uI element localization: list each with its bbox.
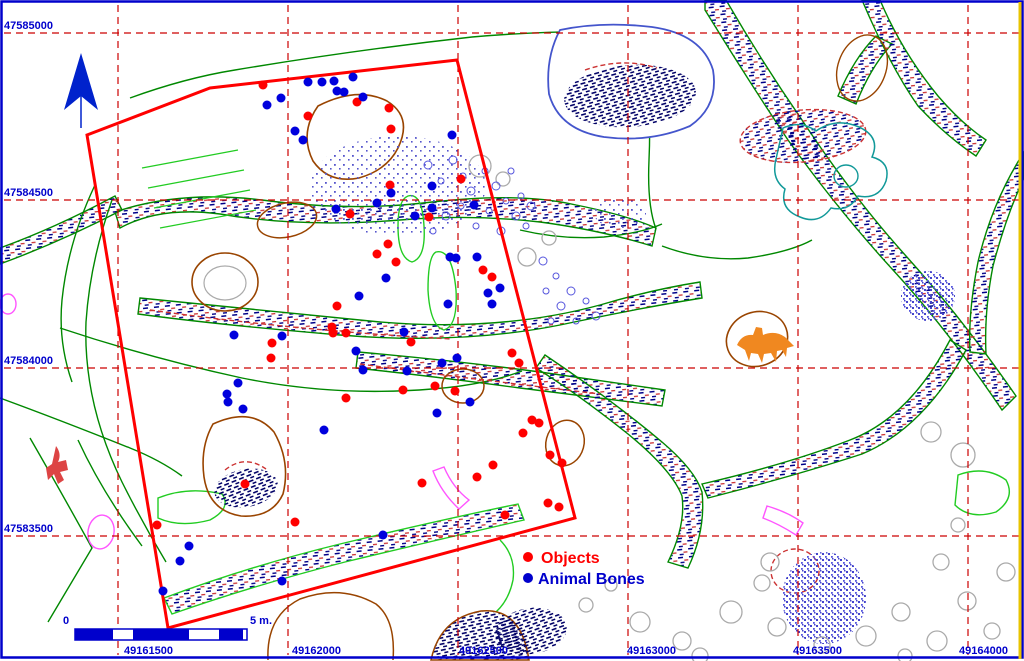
- animal-bone-point: [387, 189, 396, 198]
- animal-bone-point: [496, 284, 505, 293]
- object-point: [418, 479, 427, 488]
- small-feature-outline: [523, 223, 529, 229]
- terrain-feature: [782, 552, 866, 644]
- easting-label: 49161500: [124, 645, 173, 657]
- pit-outline: [921, 422, 941, 442]
- scale-bar-segment: [219, 629, 243, 640]
- small-feature-outline: [508, 168, 514, 174]
- animal-bone-point: [352, 347, 361, 356]
- object-point: [384, 240, 393, 249]
- animal-bone-point: [428, 182, 437, 191]
- terrain-feature: [594, 198, 646, 228]
- animal-bone-point: [488, 300, 497, 309]
- scale-bar-segments: [75, 629, 247, 640]
- site-map-figure: 4758500047584500475840004758350049161500…: [0, 0, 1024, 661]
- terrain-feature: [738, 105, 868, 168]
- animal-bone-point: [473, 253, 482, 262]
- animal-bone-point: [349, 73, 358, 82]
- animal-bone-point: [263, 101, 272, 110]
- animal-bone-point: [230, 331, 239, 340]
- pit-outline: [768, 618, 786, 636]
- animal-bone-point: [400, 328, 409, 337]
- scale-bar-segment: [133, 629, 159, 640]
- animal-bone-point: [403, 367, 412, 376]
- terrain-feature: [158, 491, 225, 524]
- site-map-canvas: 4758500047584500475840004758350049161500…: [0, 0, 1024, 661]
- animal-bone-point: [330, 77, 339, 86]
- small-feature-outline: [557, 302, 565, 310]
- object-point: [241, 480, 250, 489]
- animal-bone-point: [224, 398, 233, 407]
- easting-label: 49162000: [292, 645, 341, 657]
- scale-length-label: 5 m.: [250, 615, 272, 627]
- animal-bone-point: [444, 300, 453, 309]
- pit-outline: [754, 575, 770, 591]
- animal-bone-point: [299, 136, 308, 145]
- scale-zero-label: 0: [63, 615, 69, 627]
- object-point: [535, 419, 544, 428]
- small-feature-outline: [543, 288, 549, 294]
- legend-animal-bones-dot-icon: [523, 573, 533, 583]
- animal-bone-point: [379, 531, 388, 540]
- terrain-feature: [496, 540, 513, 612]
- north-arrow: [64, 53, 98, 128]
- animal-bone-point: [239, 405, 248, 414]
- pit-outline: [542, 231, 556, 245]
- terrain-feature: [310, 136, 486, 236]
- terrain-feature: [0, 398, 182, 476]
- animal-bone-point: [176, 557, 185, 566]
- object-point: [259, 81, 268, 90]
- animal-bone-point: [448, 131, 457, 140]
- small-feature-outline: [583, 298, 589, 304]
- object-point: [457, 175, 466, 184]
- scale-bar-segment: [159, 629, 189, 640]
- animal-bone-point: [484, 289, 493, 298]
- coordinate-labels: 4758500047584500475840004758350049161500…: [4, 20, 1008, 657]
- northing-label: 47585000: [4, 20, 53, 32]
- terrain-feature: [86, 200, 166, 562]
- object-point: [555, 503, 564, 512]
- animal-bone-point: [185, 542, 194, 551]
- object-point: [407, 338, 416, 347]
- scale-bar-segment: [113, 629, 133, 640]
- object-point: [431, 382, 440, 391]
- animal-bone-point: [359, 366, 368, 375]
- animal-bone-point: [291, 127, 300, 136]
- object-point: [304, 112, 313, 121]
- legend: Objects Animal Bones: [523, 550, 645, 588]
- pit-outline: [518, 248, 536, 266]
- terrain-feature: [164, 504, 524, 614]
- terrain-feature: [428, 252, 456, 330]
- pit-outline: [997, 563, 1015, 581]
- animal-bone-point: [428, 204, 437, 213]
- object-point: [544, 499, 553, 508]
- terrain-feature: [737, 327, 794, 363]
- object-point: [451, 387, 460, 396]
- object-point: [473, 473, 482, 482]
- terrain-feature: [433, 467, 469, 509]
- object-point: [546, 451, 555, 460]
- pit-outline: [933, 554, 949, 570]
- animal-bone-point: [411, 212, 420, 221]
- animal-bone-point: [433, 409, 442, 418]
- northing-label: 47584500: [4, 187, 53, 199]
- pit-outline: [720, 601, 742, 623]
- object-point: [558, 459, 567, 468]
- animal-bone-point: [277, 94, 286, 103]
- scale-bar-segment: [75, 629, 113, 640]
- animal-bone-point: [332, 205, 341, 214]
- terrain-feature: [192, 253, 258, 311]
- scale-bar-segment: [189, 629, 219, 640]
- terrain-feature: [356, 352, 665, 406]
- small-feature-outline: [539, 257, 547, 265]
- pit-outline: [761, 553, 779, 571]
- animal-bone-point: [470, 201, 479, 210]
- object-point: [342, 394, 351, 403]
- object-point: [515, 359, 524, 368]
- animal-bone-point: [373, 199, 382, 208]
- pit-outline: [951, 443, 975, 467]
- object-point: [387, 125, 396, 134]
- animal-bone-point: [466, 398, 475, 407]
- object-point: [489, 461, 498, 470]
- object-point: [373, 250, 382, 259]
- animal-bone-point: [318, 78, 327, 87]
- small-feature-outline: [567, 287, 575, 295]
- terrain-features: [0, 0, 1024, 660]
- animal-bone-point: [278, 332, 287, 341]
- object-point: [385, 104, 394, 113]
- pit-outline: [692, 648, 708, 661]
- small-feature-outline: [553, 273, 559, 279]
- animal-bone-point: [320, 426, 329, 435]
- pit-outline: [856, 626, 876, 646]
- pit-outline: [630, 612, 650, 632]
- easting-label: 49163000: [627, 645, 676, 657]
- object-point: [488, 273, 497, 282]
- northing-label: 47584000: [4, 355, 53, 367]
- pit-outline: [898, 649, 912, 661]
- object-point: [392, 258, 401, 267]
- legend-objects-dot-icon: [523, 552, 533, 562]
- animal-bone-point: [340, 88, 349, 97]
- object-point: [342, 329, 351, 338]
- pit-outline: [951, 518, 965, 532]
- object-point: [346, 210, 355, 219]
- object-point: [501, 511, 510, 520]
- small-feature-outline: [492, 182, 500, 190]
- object-point: [329, 329, 338, 338]
- object-point: [333, 302, 342, 311]
- object-point: [508, 349, 517, 358]
- animal-bone-point: [304, 78, 313, 87]
- terrain-feature: [955, 471, 1009, 515]
- animal-bone-point: [278, 577, 287, 586]
- pit-outline: [927, 631, 947, 651]
- object-point: [386, 181, 395, 190]
- pit-outline: [579, 598, 593, 612]
- easting-label: 49162500: [459, 645, 508, 657]
- legend-objects-label: Objects: [541, 550, 600, 567]
- object-point: [519, 429, 528, 438]
- animal-bone-point: [223, 390, 232, 399]
- terrain-feature: [225, 462, 266, 470]
- animal-bone-point: [382, 274, 391, 283]
- object-point: [268, 339, 277, 348]
- terrain-feature: [763, 506, 803, 535]
- animal-bone-point: [452, 254, 461, 263]
- small-feature-outline: [473, 223, 479, 229]
- animal-bone-point: [234, 379, 243, 388]
- animal-bone-point: [355, 292, 364, 301]
- object-point: [291, 518, 300, 527]
- animal-bone-point: [159, 587, 168, 596]
- object-point: [399, 386, 408, 395]
- legend-animal-bones-label: Animal Bones: [538, 571, 645, 588]
- northing-label: 47583500: [4, 523, 53, 535]
- pit-outline: [958, 592, 976, 610]
- pit-outline: [496, 172, 510, 186]
- terrain-feature: [970, 152, 1024, 354]
- easting-label: 49163500: [793, 645, 842, 657]
- animal-bone-point: [359, 93, 368, 102]
- terrain-feature: [204, 266, 246, 300]
- terrain-feature: [46, 446, 68, 484]
- object-point: [479, 266, 488, 275]
- pit-outline: [892, 603, 910, 621]
- terrain-feature: [901, 271, 955, 321]
- object-point: [425, 213, 434, 222]
- easting-label: 49164000: [959, 645, 1008, 657]
- pit-outline: [984, 623, 1000, 639]
- terrain-feature: [662, 240, 812, 259]
- object-point: [267, 354, 276, 363]
- object-point: [153, 521, 162, 530]
- animal-bone-point: [438, 359, 447, 368]
- animal-bone-point: [453, 354, 462, 363]
